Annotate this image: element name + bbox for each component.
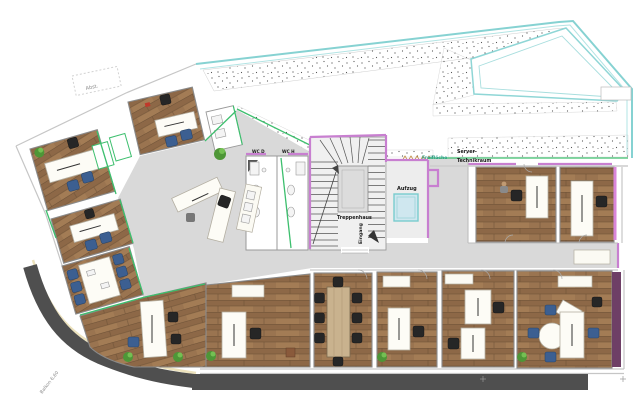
task-chair xyxy=(171,334,181,344)
visitor-chair xyxy=(545,305,556,315)
terrace-gravel-band-mid xyxy=(433,102,617,116)
cabinet xyxy=(445,274,473,284)
toilet xyxy=(288,185,295,195)
elevator-cabin xyxy=(394,194,418,221)
task-chair xyxy=(511,190,522,201)
visitor-chair xyxy=(180,129,193,141)
storage-label: Abst. xyxy=(85,83,99,92)
plant-leaf xyxy=(382,353,387,358)
balcony-bar xyxy=(192,374,588,390)
task-chair xyxy=(592,297,602,307)
task-chair xyxy=(413,326,424,337)
person-head xyxy=(502,182,507,187)
visitor-chair xyxy=(528,328,539,338)
corridor-cabinet xyxy=(574,250,610,264)
stairwell: Treppenhaus Eingang xyxy=(310,135,386,253)
wc-men-label: WC H xyxy=(282,149,295,154)
plant-leaf xyxy=(219,148,225,154)
task-chair xyxy=(596,196,607,207)
server-room-label-2: Technikraum xyxy=(457,158,491,164)
sink xyxy=(286,168,290,172)
office-right-2 xyxy=(560,167,614,242)
task-chair xyxy=(168,312,178,322)
visitor-chair xyxy=(588,328,599,338)
visitor-chair xyxy=(545,352,556,362)
sink xyxy=(262,168,266,172)
toilet xyxy=(288,207,295,217)
task-chair xyxy=(493,302,504,313)
storage-outline xyxy=(72,66,121,95)
stairwell-label: Treppenhaus xyxy=(337,215,372,221)
office-bottom-1 xyxy=(206,274,310,367)
appliance xyxy=(244,202,253,211)
stair-landing xyxy=(338,166,368,212)
balcony-label: Balkon 6,60 xyxy=(39,370,60,395)
conference-chair xyxy=(352,313,362,323)
locker xyxy=(109,133,131,160)
person-body xyxy=(500,186,508,193)
conference-chair xyxy=(315,293,325,303)
appliance xyxy=(241,214,250,223)
stool xyxy=(186,213,195,222)
task-chair xyxy=(159,94,171,106)
conference-chair xyxy=(333,277,343,287)
entrance-label: Eingang xyxy=(358,223,364,244)
side-item xyxy=(286,348,295,357)
visitor-chair xyxy=(165,135,178,147)
plant-leaf xyxy=(178,353,183,358)
appliance xyxy=(246,190,255,199)
office-bottom-3 xyxy=(442,271,514,367)
office-bottom-2 xyxy=(377,272,437,367)
plant-leaf xyxy=(211,352,216,357)
plant-leaf xyxy=(128,353,133,358)
server-room-label-1: Server- xyxy=(457,149,477,155)
open-area-label: Freifläche xyxy=(422,155,447,161)
floor-plan-page: Balkon 6,60 xyxy=(0,0,640,412)
floor-plan-drawing: Balkon 6,60 xyxy=(0,0,640,412)
visitor-chair xyxy=(128,337,139,347)
office-left-1 xyxy=(30,130,115,211)
wc-counter xyxy=(250,162,259,175)
wc-women-label: WC D xyxy=(252,149,265,154)
office-corner xyxy=(517,271,621,368)
terrace-notch xyxy=(601,87,631,100)
conference-chair xyxy=(352,293,362,303)
elevator-label: Aufzug xyxy=(397,186,417,192)
wall-dark-purple xyxy=(612,272,621,367)
conference-chair xyxy=(352,333,362,343)
cabinet xyxy=(383,276,410,287)
cabinet xyxy=(232,285,264,297)
conference-table xyxy=(327,287,350,357)
wc-counter xyxy=(296,162,305,175)
conference-chair xyxy=(333,357,343,366)
conference-room xyxy=(314,273,372,367)
conference-chair xyxy=(315,333,325,343)
office-right-1 xyxy=(476,167,556,242)
conference-chair xyxy=(315,313,325,323)
task-chair xyxy=(250,328,261,339)
desk xyxy=(140,300,167,357)
task-chair xyxy=(448,338,459,349)
plant-leaf xyxy=(522,353,527,358)
cabinet xyxy=(558,276,592,287)
